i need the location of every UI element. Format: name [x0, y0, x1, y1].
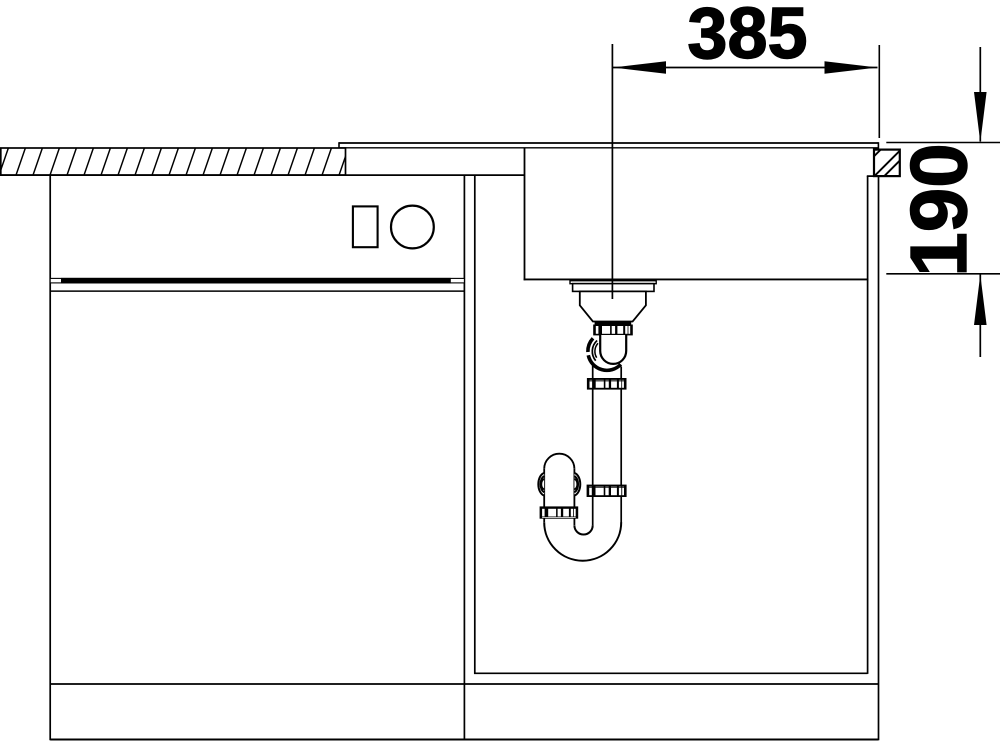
svg-text:190: 190: [894, 143, 983, 276]
svg-text:385: 385: [687, 0, 807, 74]
